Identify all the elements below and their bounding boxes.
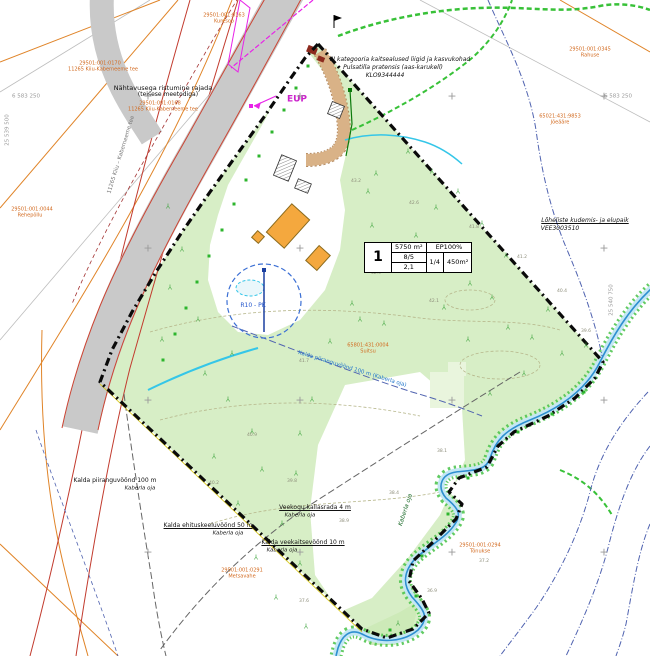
plot-ep: EP100% bbox=[426, 243, 472, 253]
plot-build-area: 450m² bbox=[444, 253, 472, 273]
plot-ratio: 1/4 bbox=[426, 253, 443, 273]
plot-number: 1 bbox=[365, 243, 392, 273]
plot-floors: 8/5 bbox=[392, 253, 427, 263]
plot-area: 5750 m² bbox=[392, 243, 427, 253]
flag-icon bbox=[334, 15, 342, 28]
detail-plan-map: Nähtavusega ristumine rajada(teisese mee… bbox=[0, 0, 650, 656]
plot-height: 2,1 bbox=[392, 263, 427, 273]
map-linework bbox=[0, 0, 650, 656]
building-rights-table: 1 5750 m² EP100% 8/5 1/4 450m² 2,1 bbox=[364, 242, 472, 273]
